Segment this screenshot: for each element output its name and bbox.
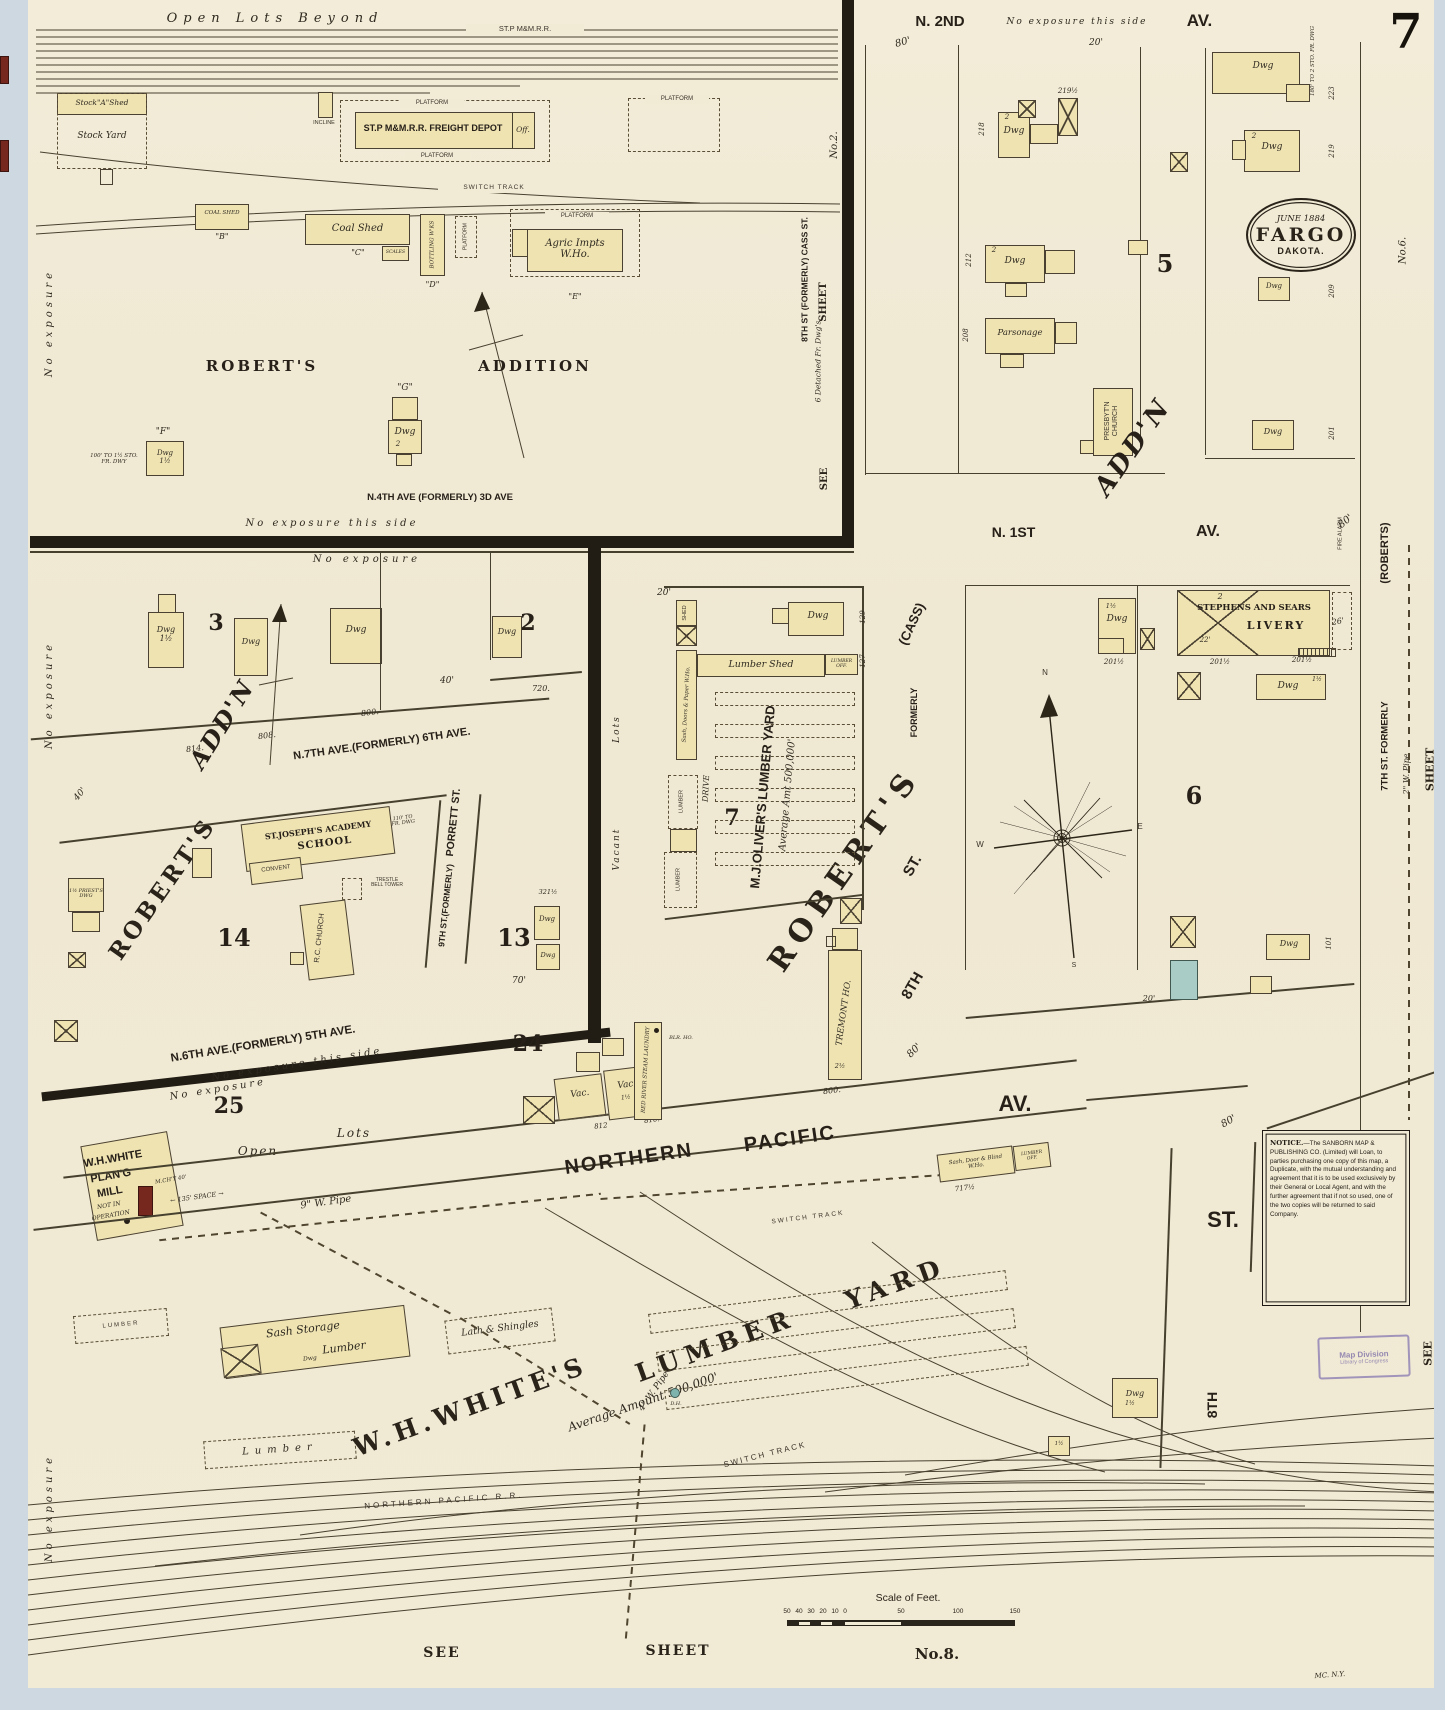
dim-70-block13: 70' bbox=[504, 976, 534, 988]
water-pipe-2-label: 2" W. Pipe bbox=[1401, 725, 1413, 823]
block-number-3: 3 bbox=[202, 610, 230, 638]
map-territory: DAKOTA. bbox=[1277, 246, 1324, 256]
eighth-st-st-label: ST. bbox=[1194, 1206, 1252, 1234]
address-219h: 219½ bbox=[1050, 87, 1086, 96]
bell-tower-outline bbox=[342, 878, 362, 900]
outbuilding-block24-2 bbox=[602, 1038, 624, 1056]
n-1st-ave-label-west: N. 1ST bbox=[976, 524, 1051, 542]
scale-tick: 0 bbox=[835, 1608, 855, 1615]
roberts-addition-label-west: ROBERT'S bbox=[196, 355, 328, 377]
n-2nd-ave-label-east: AV. bbox=[1172, 10, 1227, 32]
dwelling-south-8th-height: 1½ bbox=[1118, 1400, 1142, 1409]
address-201h-1: 201½ bbox=[1200, 658, 1240, 668]
dwelling-218-height: 2 bbox=[1000, 113, 1014, 123]
section-border-mid-right bbox=[588, 545, 601, 1043]
address-720: 720. bbox=[524, 684, 558, 695]
address-129: 129 bbox=[859, 603, 869, 631]
open-lots-beyond-label: Open Lots Beyond bbox=[130, 10, 420, 28]
compass-e-label: E bbox=[1134, 822, 1146, 833]
outbuilding-tremont bbox=[826, 936, 836, 947]
platform-label-south: PLATFORM bbox=[405, 152, 469, 161]
dwelling-g-porch bbox=[396, 454, 412, 466]
dwelling-g-label: Dwg bbox=[388, 427, 422, 439]
bottling-works-name: "D" bbox=[420, 280, 445, 291]
dwelling-g-name: "G" bbox=[390, 383, 420, 395]
roberts-margin-label: (ROBERTS) bbox=[1378, 497, 1394, 609]
dwelling-g-height: 2 bbox=[390, 440, 406, 449]
dwelling-g-building bbox=[392, 397, 418, 420]
dwelling-f-note: 100' TO 1½ STO. FR. DWY bbox=[82, 451, 146, 469]
dwelling-321h-label: Dwg bbox=[534, 914, 560, 926]
map-date: JUNE 1884 bbox=[1277, 214, 1326, 224]
dw3c-label: Dwg bbox=[336, 624, 376, 637]
formerly-label-roberts: FORMERLY bbox=[907, 670, 922, 755]
dwelling-129-label: Dwg bbox=[796, 610, 840, 623]
dwelling-219-label: Dwg bbox=[1252, 142, 1292, 154]
driven-well-dot bbox=[670, 1388, 680, 1398]
platform-label-east: PLATFORM bbox=[645, 95, 709, 104]
outbuilding-xbox-3 bbox=[1170, 152, 1188, 172]
block3-east-line bbox=[380, 552, 381, 710]
dwelling-f-name: "F" bbox=[150, 427, 176, 439]
dwelling-block6-label: Dwg bbox=[1268, 680, 1308, 693]
lumber-storage-2-label: LUMBER bbox=[674, 843, 685, 917]
agric-warehouse-annex bbox=[512, 229, 528, 257]
block7-east-line bbox=[862, 586, 864, 910]
page-edge-bottom bbox=[0, 1688, 1445, 1710]
dwelling-201h-height: 1½ bbox=[1100, 602, 1122, 611]
scale-bar-title: Scale of Feet. bbox=[860, 1592, 956, 1604]
dwelling-block3a-wing bbox=[158, 594, 176, 614]
bottling-works-label: BOTTLING W'KS bbox=[427, 210, 440, 280]
agric-warehouse-name: "E" bbox=[562, 292, 588, 303]
dwelling-101-label: Dwg bbox=[1272, 938, 1306, 950]
presbyterian-church-porch bbox=[1080, 440, 1094, 454]
eighth-st-label-south: 8TH bbox=[1204, 1382, 1222, 1428]
dw3b-label: Dwg bbox=[234, 636, 268, 648]
address-223: 223 bbox=[1328, 78, 1338, 108]
parsonage-label: Parsonage bbox=[986, 327, 1054, 340]
freight-depot-office-label: Off. bbox=[511, 124, 535, 136]
special-building-teal bbox=[1170, 960, 1198, 1000]
livery-type-label: LIVERY bbox=[1230, 618, 1322, 633]
map-title-oval: JUNE 1884 FARGO DAKOTA. bbox=[1246, 198, 1356, 272]
coal-shed-b-name: "B" bbox=[208, 232, 236, 243]
incline-structure bbox=[318, 92, 333, 118]
livery-dim-22: 22' bbox=[1192, 636, 1218, 646]
laundry-chimney-dot bbox=[654, 1028, 659, 1033]
block-number-24: 24 bbox=[508, 1032, 548, 1058]
block-number-5: 5 bbox=[1150, 250, 1180, 278]
outbuilding-xbox-2 bbox=[1058, 98, 1078, 136]
dwelling-223-wing bbox=[1286, 84, 1310, 102]
address-201: 201 bbox=[1328, 418, 1338, 448]
block-number-14: 14 bbox=[214, 924, 254, 952]
block-number-6: 6 bbox=[1178, 782, 1210, 810]
dim-20-block7: 20' bbox=[650, 588, 678, 600]
page-edge-right bbox=[1434, 0, 1445, 1710]
agric-warehouse-label: Agric Impts W.Ho. bbox=[530, 236, 620, 264]
no-exposure-label-west-3: No exposure bbox=[42, 1443, 58, 1573]
coal-shed-c-name: "C" bbox=[344, 248, 372, 259]
dim-20-block6: 20' bbox=[1136, 994, 1162, 1005]
outbuilding-xbox-1 bbox=[1018, 100, 1036, 118]
priests-dwelling-label: 1½ PRIEST'S DWG bbox=[64, 884, 108, 904]
dw2-label: Dwg bbox=[492, 626, 522, 638]
boiler-red-building bbox=[138, 1186, 153, 1216]
cass-st-label: 8TH ST (FORMERLY) CASS ST. bbox=[798, 191, 813, 369]
block6-mid-line bbox=[1137, 585, 1138, 970]
dwelling-201h-label: Dwg bbox=[1098, 614, 1136, 626]
sheet-number: 7 bbox=[1378, 2, 1434, 62]
dwelling-201h-rear bbox=[1098, 638, 1124, 654]
outbuilding-xbox-8 bbox=[68, 952, 86, 968]
outbuilding-xbox-11 bbox=[840, 898, 862, 924]
stpmm-rr-label: ST.P M&M.R.R. bbox=[466, 24, 584, 35]
sheet-ref-see-label-tl: SEE bbox=[818, 450, 832, 508]
platform-label-north: PLATFORM bbox=[400, 99, 464, 108]
dwelling-block13b-label: Dwg bbox=[536, 950, 560, 961]
section-border-top-right bbox=[842, 0, 854, 548]
dwelling-212-label: Dwg bbox=[990, 255, 1040, 268]
platform-small-label: PLATFORM bbox=[462, 203, 471, 271]
see-label-bottom: SEE bbox=[412, 1644, 472, 1664]
water-pipe-2-line bbox=[1408, 545, 1410, 1120]
scales-label: SCALES bbox=[382, 249, 409, 258]
address-209: 209 bbox=[1328, 276, 1338, 306]
address-201h-3: 201½ bbox=[1094, 658, 1134, 668]
lumber-office-label: LUMBER OFF. bbox=[826, 656, 857, 673]
address-208: 208 bbox=[962, 320, 972, 350]
depot-platform-outline-east bbox=[628, 98, 720, 152]
section-border-top-bottom-inner bbox=[30, 551, 854, 553]
scale-bar-gap bbox=[799, 1622, 810, 1625]
notice-body: —The SANBORN MAP & PUBLISHING CO. (Limit… bbox=[1270, 1140, 1396, 1218]
lumber-pile-row-1 bbox=[715, 692, 855, 706]
outbuilding-south-label: 1½ bbox=[1048, 1440, 1070, 1450]
scale-tick: 150 bbox=[1005, 1608, 1025, 1615]
sheet-no8-label: No.8. bbox=[906, 1644, 968, 1664]
address-321h: 321½ bbox=[530, 888, 566, 898]
driven-well-label: D.H. bbox=[662, 1400, 690, 1409]
outbuilding-block5 bbox=[1128, 240, 1148, 255]
scale-bar-gap bbox=[845, 1622, 901, 1625]
fire-alarm-note: FIRE ALARM bbox=[1336, 501, 1347, 567]
open-lots-label-2: Lots bbox=[330, 1124, 378, 1142]
boiler-house-note: BLR. HO. bbox=[660, 1034, 702, 1043]
sheet-ref-no2-label: No.2. bbox=[828, 116, 842, 174]
scale-tick: 50 bbox=[891, 1608, 911, 1615]
block2-west-line bbox=[490, 552, 491, 660]
livery-annex-outline bbox=[1332, 592, 1352, 650]
dwelling-219-wing bbox=[1232, 140, 1246, 160]
note-180ft: 180' TO 2 STO. FR. DWG bbox=[1309, 9, 1319, 113]
scale-bar: Scale of Feet. 5040302010050100150 bbox=[700, 1590, 1040, 1636]
lumber-storage-1-label: LUMBER bbox=[677, 766, 688, 838]
library-stamp-line2: Library of Congress bbox=[1340, 1358, 1388, 1366]
priests-dwelling-rear bbox=[72, 912, 100, 932]
no-exposure-label-n2nd: No exposure this side bbox=[988, 16, 1166, 29]
no-exposure-label-west-2: No exposure bbox=[42, 630, 58, 760]
lumber-shed-label: Lumber Shed bbox=[705, 658, 817, 672]
livery-name-label: STEPHENS AND SEARS bbox=[1180, 603, 1328, 615]
compass-n-label: N bbox=[1038, 668, 1052, 679]
outbuilding-block6-south bbox=[1250, 976, 1272, 994]
scale-bar-gap bbox=[821, 1622, 832, 1625]
block-number-25: 25 bbox=[210, 1094, 248, 1120]
vacant-lots-label-2: Vacant bbox=[611, 811, 625, 887]
compass-s-label: S bbox=[1068, 960, 1080, 971]
outbuilding-block14 bbox=[192, 848, 212, 878]
np-ave-label: AV. bbox=[986, 1090, 1044, 1118]
dim-40-block2: 40' bbox=[432, 676, 462, 688]
map-city: FARGO bbox=[1256, 224, 1347, 246]
dwelling-219-height: 2 bbox=[1248, 132, 1260, 141]
parsonage-porch bbox=[1000, 354, 1024, 368]
rc-church-porch bbox=[290, 952, 304, 965]
dwelling-218-label: Dwg bbox=[996, 126, 1032, 138]
page-edge-left bbox=[0, 0, 28, 1710]
freight-depot-label: ST.P M&M.R.R. FREIGHT DEPOT bbox=[357, 120, 509, 138]
sheet-ref-no6-label: No.6. bbox=[1398, 225, 1411, 277]
outbuilding-xbox-6 bbox=[1170, 916, 1196, 948]
stock-yard-label: Stock Yard bbox=[60, 130, 144, 144]
dwelling-212-height: 2 bbox=[988, 246, 1000, 255]
address-219: 219 bbox=[1328, 136, 1338, 166]
notice-title: NOTICE. bbox=[1270, 1139, 1303, 1147]
library-stamp: Map Division Library of Congress bbox=[1317, 1334, 1410, 1379]
sheet-label-bottom: SHEET bbox=[640, 1642, 716, 1662]
scale-tick: 100 bbox=[948, 1608, 968, 1615]
address-201h-2: 201½ bbox=[1282, 656, 1322, 666]
seventh-st-margin-label: 7TH ST. FORMERLY bbox=[1378, 679, 1394, 814]
bell-tower-label: TRESTLE BELL TOWER bbox=[360, 874, 414, 892]
parsonage-wing bbox=[1055, 322, 1077, 344]
detached-dwellings-note: 6 Detached Fr. Dwg's bbox=[813, 291, 826, 433]
dwelling-south-8th-label: Dwg bbox=[1116, 1388, 1154, 1400]
outbuilding-xbox-4 bbox=[1140, 628, 1155, 650]
address-127: 127 bbox=[859, 647, 869, 675]
outbuilding-xbox-10 bbox=[523, 1096, 555, 1124]
address-218: 218 bbox=[978, 114, 988, 144]
dwelling-218-wing bbox=[1030, 124, 1058, 144]
dwelling-201-label: Dwg bbox=[1254, 426, 1292, 438]
dwelling-223-label: Dwg bbox=[1240, 60, 1286, 73]
paper-edge-mark-b bbox=[0, 140, 9, 172]
outbuilding-xbox-7 bbox=[676, 626, 697, 646]
dwelling-block3a-label: Dwg 1½ bbox=[148, 624, 184, 646]
dwelling-f-label: Dwg 1½ bbox=[146, 447, 184, 468]
outbuilding-xbox-5 bbox=[1177, 672, 1201, 700]
compass-rose bbox=[994, 694, 1132, 958]
roberts-addition-label-east: ADDITION bbox=[464, 355, 606, 377]
n-1st-ave-label-east: AV. bbox=[1182, 522, 1234, 542]
dwelling-block6-height: 1½ bbox=[1308, 676, 1326, 685]
stock-yard-chute bbox=[100, 169, 113, 185]
dim-20-n2nd: 20' bbox=[1082, 38, 1110, 50]
block-number-13: 13 bbox=[494, 924, 534, 952]
block6-west-line bbox=[965, 585, 966, 970]
coal-shed-c-label: Coal Shed bbox=[310, 222, 405, 236]
address-212: 212 bbox=[965, 245, 975, 275]
switch-track-label-north: SWITCH TRACK bbox=[438, 183, 550, 193]
block6-north-line bbox=[965, 585, 1350, 586]
no-exposure-label-ml: No exposure bbox=[292, 553, 442, 567]
dwelling-212-porch bbox=[1005, 283, 1027, 297]
lumber-office-2-label: LUMBER OFF. bbox=[1014, 1144, 1050, 1169]
paper-edge-mark-a bbox=[0, 56, 9, 84]
dwelling-209-label: Dwg bbox=[1258, 281, 1290, 293]
agric-platform-label: PLATFORM bbox=[545, 212, 609, 221]
outbuilding-xbox-12 bbox=[220, 1344, 261, 1378]
tremont-house-height: 2½ bbox=[830, 1062, 850, 1072]
vacant-lots-label-1: Lots bbox=[611, 696, 625, 762]
block7-north-line bbox=[664, 586, 862, 588]
dwelling-212-wing bbox=[1045, 250, 1075, 274]
block5r-south-line bbox=[1205, 458, 1355, 459]
address-101: 101 bbox=[1325, 929, 1335, 957]
no-exposure-label-n4th: No exposure this side bbox=[212, 517, 452, 531]
notice-box: NOTICE.—The SANBORN MAP & PUBLISHING CO.… bbox=[1262, 1130, 1410, 1306]
n-4th-ave-label: N.4TH AVE (FORMERLY) 3D AVE bbox=[358, 491, 522, 505]
no-exposure-label-west-1: No exposure bbox=[42, 258, 58, 388]
outbuilding-xbox-9 bbox=[54, 1020, 78, 1042]
block5r-west-line bbox=[1205, 48, 1206, 455]
n-2nd-ave-label-west: N. 2ND bbox=[900, 12, 980, 32]
block5-west-line bbox=[958, 45, 959, 473]
section-border-top-bottom bbox=[30, 536, 854, 548]
compass-w-label: W bbox=[974, 840, 986, 851]
coal-shed-b-label: COAL SHED bbox=[196, 209, 248, 219]
street-line-8th-east bbox=[865, 45, 866, 475]
outbuilding-block24-1 bbox=[576, 1052, 600, 1072]
livery-floors: 2 bbox=[1210, 592, 1230, 602]
